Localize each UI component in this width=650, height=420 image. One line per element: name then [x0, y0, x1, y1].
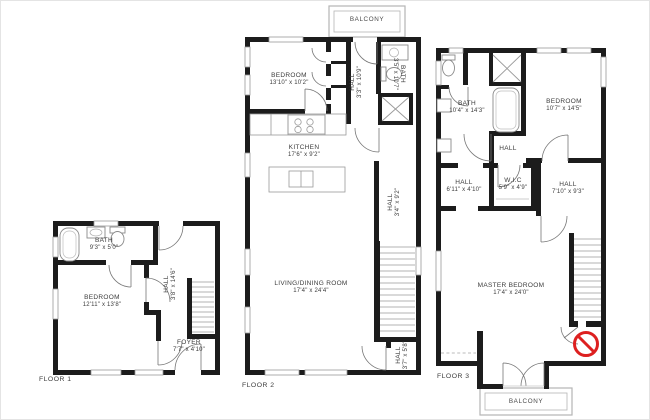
room-label-f3-wic: W.I.C5'9" x 4'9" — [499, 177, 527, 193]
floorplan-canvas: BATH9'3" x 5'0" BEDROOM12'11" x 13'8" HA… — [0, 0, 650, 420]
room-label-f2-hall-bottom: HALL3'7" x 5'8" — [395, 341, 411, 369]
room-label-f2-hall-top: HALL3'3" x 10'9" — [349, 66, 365, 98]
room-label-f3-master-bedroom: MASTER BEDROOM17'4" x 24'0" — [478, 282, 545, 298]
floor3-closet-dashed-line — [441, 199, 529, 353]
room-label-f2-kitchen: KITCHEN17'6" x 9'2" — [288, 144, 320, 160]
room-label-f1-bath: BATH9'3" x 5'0" — [90, 237, 118, 253]
room-label-f2-bedroom: BEDROOM13'10" x 10'2" — [269, 72, 308, 88]
room-label-f3-hall-left: HALL6'11" x 4'10" — [446, 179, 481, 195]
room-label-f1-hall: HALL3'8" x 14'6" — [163, 268, 179, 300]
floor2-stairs — [380, 247, 415, 331]
floor1-label: FLOOR 1 — [39, 376, 72, 383]
floor2-closet-x — [382, 97, 409, 121]
room-label-f2-bath: BATH3'5" x 10'7" — [390, 58, 406, 90]
balcony-label-f2: BALCONY — [350, 16, 384, 24]
room-label-f1-foyer: FOYER7'7" x 4'10" — [173, 339, 205, 355]
floor2-label: FLOOR 2 — [242, 382, 275, 389]
room-label-f2-hall-mid: HALL3'4" x 9'2" — [387, 188, 403, 216]
floor3-label: FLOOR 3 — [437, 373, 470, 380]
floor2-doors — [305, 42, 386, 370]
floor3-shower-x — [493, 55, 521, 82]
room-label-f2-living-dining: LIVING/DINING ROOM17'4" x 24'4" — [274, 280, 347, 296]
floor1-stairs — [192, 282, 214, 332]
floor3-stairs — [574, 239, 601, 317]
room-label-f3-hall-right: HALL7'10" x 9'3" — [552, 181, 584, 197]
floorplan-graphics — [1, 1, 650, 420]
room-label-f3-bedroom: BEDROOM10'7" x 14'5" — [546, 98, 582, 114]
room-label-f3-bath: BATH10'4" x 14'3" — [449, 100, 485, 116]
room-label-f1-bedroom: BEDROOM12'11" x 13'8" — [83, 294, 122, 310]
balcony-label-f3: BALCONY — [509, 398, 543, 406]
room-label-f3-hall-small: HALL — [499, 145, 516, 153]
